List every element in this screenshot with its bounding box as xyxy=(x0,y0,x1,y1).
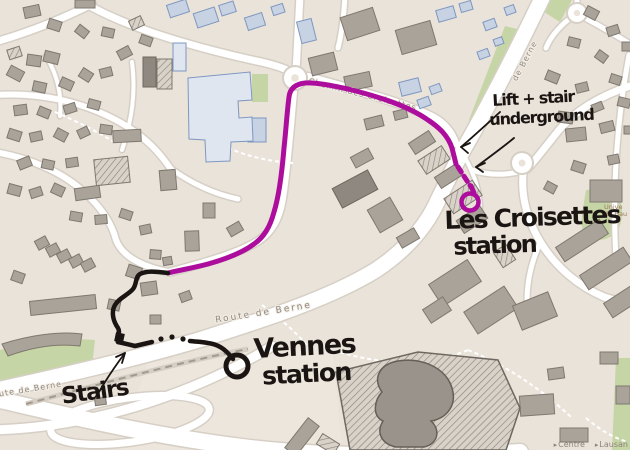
black-route-dot xyxy=(180,336,185,341)
building xyxy=(159,169,177,190)
building xyxy=(29,131,43,142)
building xyxy=(69,211,82,222)
roundabout-island xyxy=(519,160,526,167)
signpost-label: Lausan xyxy=(599,440,628,449)
building xyxy=(173,43,186,71)
roundabout-island xyxy=(574,10,580,16)
building xyxy=(95,214,108,224)
roundabout-island xyxy=(291,74,299,82)
building xyxy=(41,159,55,170)
building xyxy=(624,126,630,134)
annotation-lift-stair-underground: Lift + stair underground xyxy=(492,88,594,129)
road xyxy=(296,0,300,72)
building xyxy=(139,224,152,235)
chevron-icon: ▸ xyxy=(554,441,558,449)
building xyxy=(203,203,215,218)
building xyxy=(600,352,618,364)
black-route-dot xyxy=(158,336,163,341)
building xyxy=(157,59,172,89)
building xyxy=(607,154,620,165)
building xyxy=(565,127,586,142)
building xyxy=(590,180,622,202)
building xyxy=(99,124,112,135)
building xyxy=(185,231,200,251)
signpost-lausanne[interactable]: ▸ Lausan xyxy=(595,440,628,449)
building xyxy=(65,157,78,168)
building xyxy=(150,315,161,324)
annotation-vennes-station: Vennes station xyxy=(253,331,357,389)
building xyxy=(150,250,162,260)
building xyxy=(26,54,41,67)
building xyxy=(101,27,115,38)
annotation-text: station xyxy=(261,358,357,388)
annotation-les-croisettes-station: Les Croisettes station xyxy=(444,202,621,259)
building xyxy=(162,256,172,265)
building xyxy=(75,0,95,8)
annotated-map[interactable]: Chemin des Croisettesde BerneRoute de Be… xyxy=(0,0,630,450)
signpost-centre[interactable]: ▸ Centre xyxy=(554,440,585,449)
building xyxy=(113,129,142,142)
building xyxy=(547,367,564,380)
building xyxy=(616,386,630,404)
building xyxy=(519,394,554,416)
building xyxy=(94,156,131,185)
chevron-icon: ▸ xyxy=(595,441,599,449)
black-route-dot xyxy=(169,334,174,339)
building xyxy=(13,104,27,116)
building xyxy=(32,81,47,93)
map-corner-links: ▸ Centre ▸ Lausan xyxy=(554,440,628,449)
building xyxy=(143,57,156,87)
green-area xyxy=(252,74,268,102)
building xyxy=(140,281,158,296)
stairs-marker xyxy=(114,332,125,343)
building xyxy=(622,42,630,51)
annotation-text: Les Croisettes xyxy=(444,202,620,234)
signpost-label: Centre xyxy=(558,440,585,449)
